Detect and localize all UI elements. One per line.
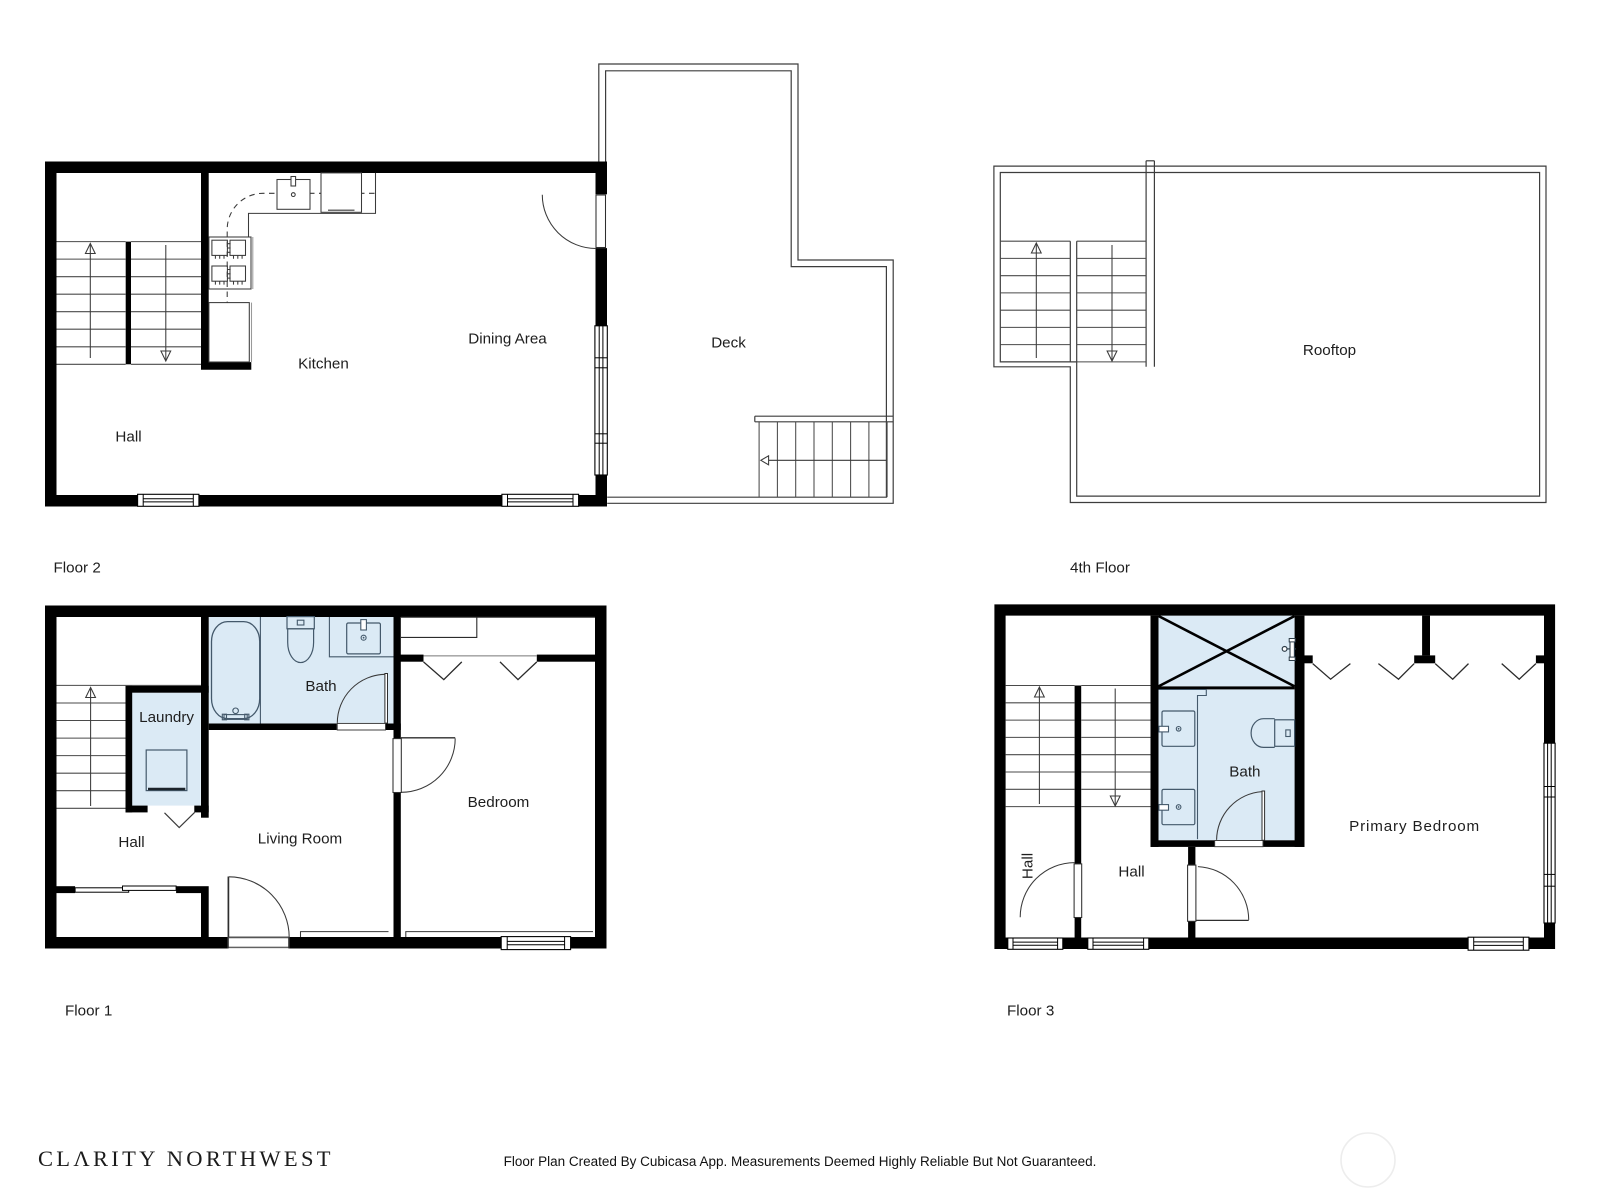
svg-text:Floor 1: Floor 1 xyxy=(65,1003,112,1020)
svg-text:Laundry: Laundry xyxy=(139,709,194,726)
svg-text:Floor 3: Floor 3 xyxy=(1007,1003,1054,1020)
svg-text:Hall: Hall xyxy=(118,834,144,851)
svg-text:CLΛRITY NORTHWEST: CLΛRITY NORTHWEST xyxy=(38,1146,334,1171)
svg-text:Dining Area: Dining Area xyxy=(468,330,547,347)
svg-text:Bath: Bath xyxy=(1229,763,1260,780)
svg-text:Rooftop: Rooftop xyxy=(1303,342,1356,359)
svg-text:Floor 2: Floor 2 xyxy=(54,560,101,577)
svg-text:Hall: Hall xyxy=(115,428,141,445)
svg-text:Kitchen: Kitchen xyxy=(298,355,349,372)
svg-text:Floor Plan Created By Cubicasa: Floor Plan Created By Cubicasa App. Meas… xyxy=(504,1154,1097,1169)
svg-text:Bath: Bath xyxy=(305,678,336,695)
svg-text:Primary Bedroom: Primary Bedroom xyxy=(1349,818,1480,835)
svg-text:Bedroom: Bedroom xyxy=(468,794,530,811)
svg-text:Living Room: Living Room xyxy=(258,830,342,847)
svg-text:Deck: Deck xyxy=(711,334,746,351)
svg-text:Hall: Hall xyxy=(1020,853,1037,879)
svg-text:4th Floor: 4th Floor xyxy=(1070,560,1130,577)
svg-text:Hall: Hall xyxy=(1118,863,1144,880)
